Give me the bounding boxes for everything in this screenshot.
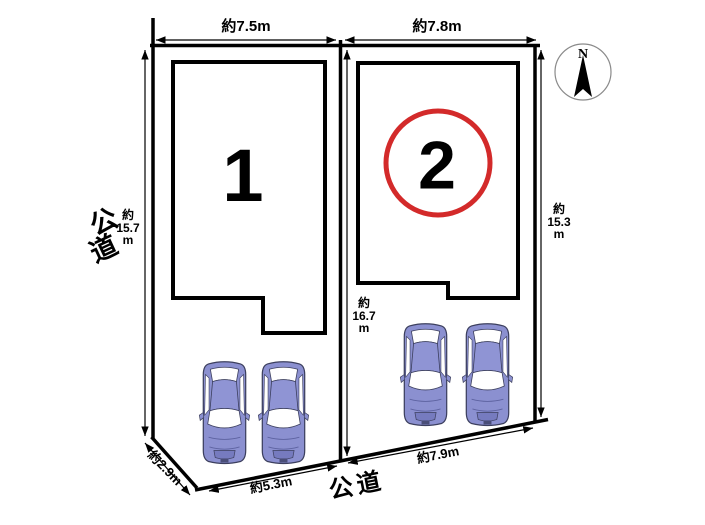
parked-cars xyxy=(199,324,512,464)
dimension-label-lot2-top: 約7.8m xyxy=(412,19,461,35)
lot2-number: 2 xyxy=(418,130,456,201)
car-icon xyxy=(400,324,450,426)
north-compass-icon: N xyxy=(555,44,611,100)
dimension-label-right-depth: 約 15.3 m xyxy=(547,203,570,241)
lot1-number: 1 xyxy=(222,137,261,215)
dimension-label-left-depth: 約 15.7 m xyxy=(116,209,139,247)
dimension-label-lot1-top: 約7.5m xyxy=(221,19,270,35)
dimension-label-center-depth: 約 16.7 m xyxy=(352,297,375,335)
road-label-left: 公 道 xyxy=(91,209,118,263)
compass-north-label: N xyxy=(578,47,588,62)
car-icon xyxy=(462,324,512,426)
lot-layout-diagram: N 約7.5m 約7.8m 1 2 公 道 約 15.7 m 約 15.3 m … xyxy=(0,0,705,525)
car-icon xyxy=(199,362,249,464)
car-icon xyxy=(258,362,308,464)
